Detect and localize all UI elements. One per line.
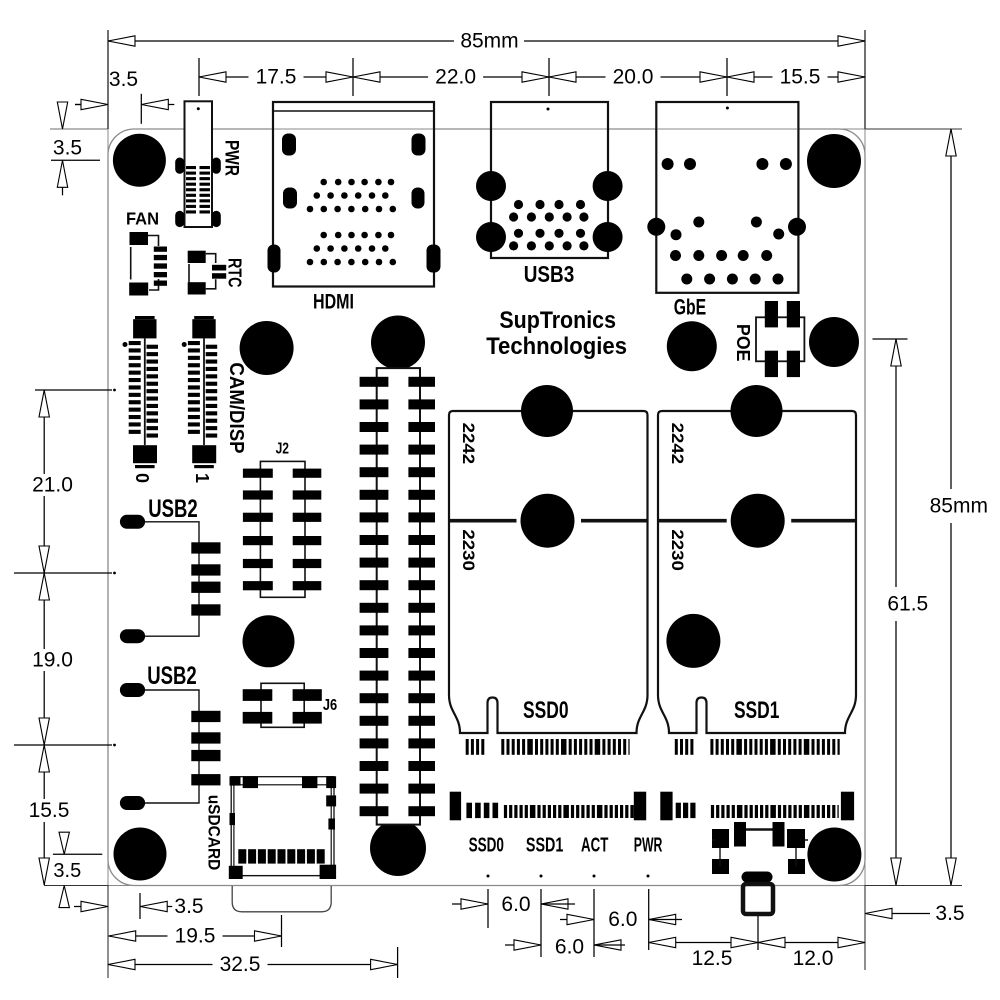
svg-text:SupTronics: SupTronics bbox=[499, 308, 616, 334]
svg-text:GbE: GbE bbox=[674, 295, 706, 320]
svg-text:SSD0: SSD0 bbox=[469, 835, 504, 857]
svg-text:3.5: 3.5 bbox=[53, 860, 81, 882]
svg-text:6.0: 6.0 bbox=[608, 908, 637, 931]
svg-text:15.5: 15.5 bbox=[780, 66, 821, 89]
svg-text:32.5: 32.5 bbox=[220, 953, 261, 976]
svg-text:12.5: 12.5 bbox=[692, 947, 733, 970]
svg-text:USB3: USB3 bbox=[524, 261, 575, 287]
svg-text:3.5: 3.5 bbox=[109, 68, 138, 91]
svg-text:2242: 2242 bbox=[459, 423, 477, 465]
svg-text:3.5: 3.5 bbox=[174, 895, 203, 918]
svg-text:2242: 2242 bbox=[668, 423, 686, 465]
svg-text:85mm: 85mm bbox=[930, 495, 988, 518]
svg-text:USB2: USB2 bbox=[147, 663, 197, 690]
svg-text:1: 1 bbox=[192, 473, 212, 483]
svg-text:2230: 2230 bbox=[459, 529, 477, 571]
svg-text:22.0: 22.0 bbox=[435, 66, 476, 89]
svg-text:6.0: 6.0 bbox=[555, 936, 584, 959]
svg-text:19.5: 19.5 bbox=[175, 925, 216, 948]
svg-text:J6: J6 bbox=[323, 697, 337, 714]
svg-text:SSD1: SSD1 bbox=[526, 835, 563, 857]
svg-text:HDMI: HDMI bbox=[313, 291, 354, 314]
svg-text:RTC: RTC bbox=[225, 258, 245, 288]
svg-text:21.0: 21.0 bbox=[32, 474, 73, 497]
svg-text:85mm: 85mm bbox=[460, 30, 518, 53]
svg-text:15.5: 15.5 bbox=[29, 799, 70, 822]
svg-text:ACT: ACT bbox=[581, 835, 608, 857]
svg-text:12.0: 12.0 bbox=[793, 947, 834, 970]
svg-text:USB2: USB2 bbox=[148, 496, 198, 523]
svg-text:SSD1: SSD1 bbox=[734, 697, 780, 724]
svg-text:CAM/DISP: CAM/DISP bbox=[225, 362, 247, 453]
svg-text:PWR: PWR bbox=[634, 835, 663, 857]
svg-text:3.5: 3.5 bbox=[53, 137, 82, 160]
svg-text:17.5: 17.5 bbox=[256, 66, 297, 89]
svg-text:19.0: 19.0 bbox=[32, 649, 73, 672]
svg-text:3.5: 3.5 bbox=[935, 902, 964, 925]
svg-text:SSD0: SSD0 bbox=[523, 697, 569, 724]
svg-text:PWR: PWR bbox=[221, 140, 242, 176]
svg-text:0: 0 bbox=[132, 473, 152, 483]
svg-text:6.0: 6.0 bbox=[501, 893, 530, 916]
svg-text:Technologies: Technologies bbox=[486, 334, 627, 360]
svg-text:2230: 2230 bbox=[668, 529, 686, 571]
svg-text:uSDCARD: uSDCARD bbox=[205, 795, 224, 871]
svg-text:61.5: 61.5 bbox=[887, 593, 928, 616]
svg-text:FAN: FAN bbox=[126, 209, 159, 229]
svg-text:J2: J2 bbox=[276, 441, 289, 458]
svg-text:POE: POE bbox=[733, 324, 753, 361]
svg-text:20.0: 20.0 bbox=[613, 66, 654, 89]
